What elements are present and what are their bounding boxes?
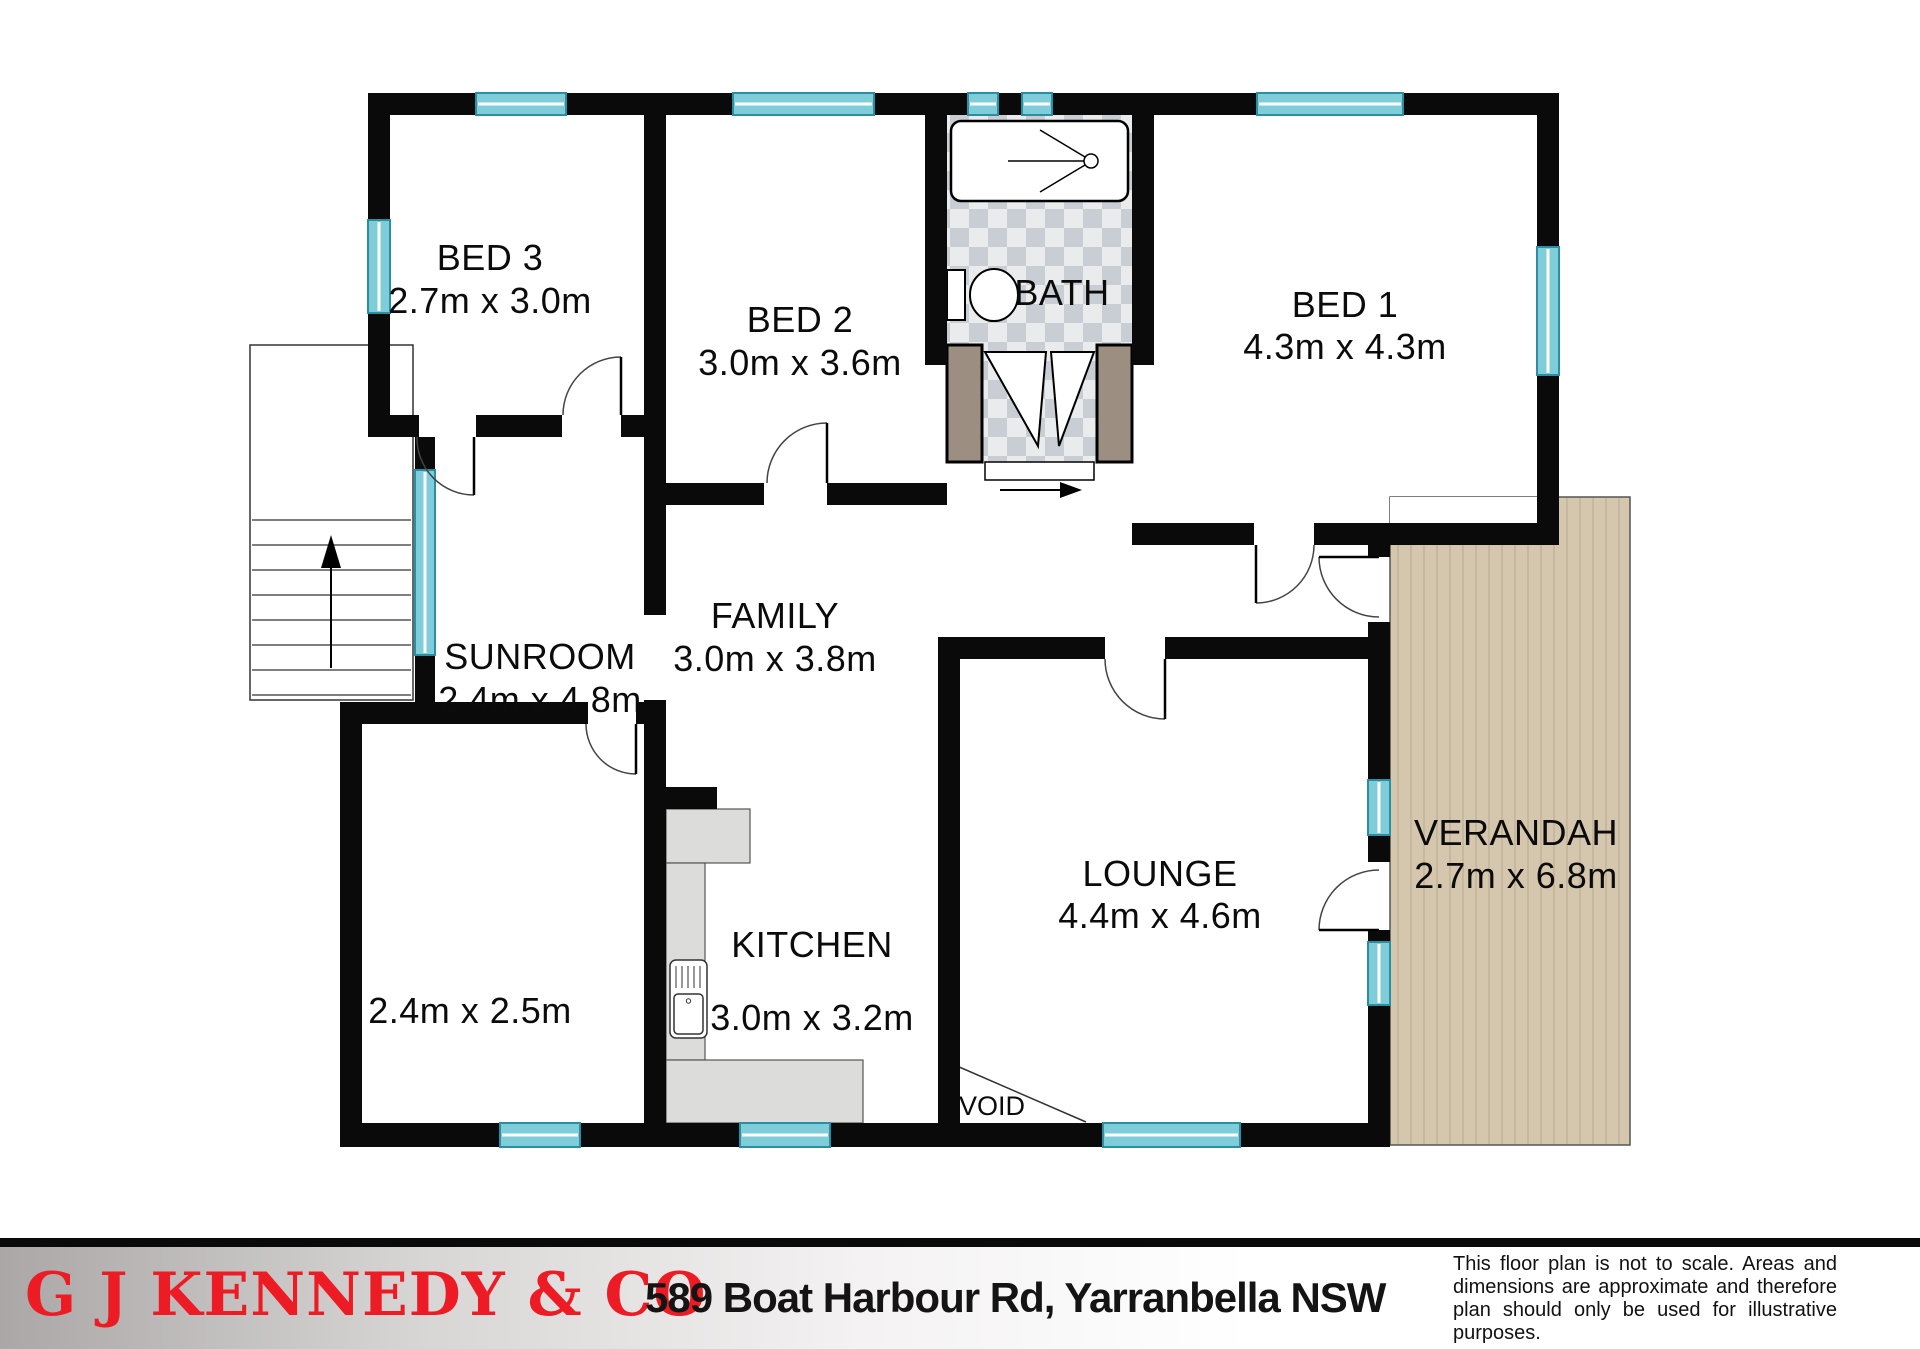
wall (644, 700, 666, 1123)
wall (1368, 622, 1390, 780)
wall (830, 1123, 1103, 1147)
wall (1165, 637, 1368, 659)
wall (1240, 1123, 1390, 1147)
wall (644, 787, 717, 809)
wall (340, 702, 362, 1147)
room-dims-bed1: 4.3m x 4.3m (1243, 326, 1447, 367)
door-arc (1319, 557, 1379, 617)
room-label-verandah: VERANDAH (1414, 812, 1618, 853)
disclaimer-text: This floor plan is not to scale. Areas a… (1453, 1253, 1837, 1345)
wall (580, 1123, 740, 1147)
door-arc (1256, 545, 1314, 603)
footer-divider (0, 1238, 1920, 1247)
room-label-bed1: BED 1 (1292, 284, 1399, 325)
kitchen-counter (666, 809, 750, 863)
door-arc (767, 423, 827, 483)
room-dims-verandah: 2.7m x 6.8m (1414, 855, 1618, 896)
property-address: 589 Boat Harbour Rd, Yarranbella NSW (645, 1273, 1385, 1323)
wall (415, 437, 435, 470)
shower-head (1084, 154, 1098, 168)
kitchen-counter (666, 1060, 863, 1123)
room-label-sunroom: SUNROOM (444, 636, 636, 677)
wall (476, 415, 562, 437)
room-label-bed2: BED 2 (747, 299, 854, 340)
robe-cupboard (1097, 345, 1132, 462)
wall (1368, 835, 1390, 862)
wall (938, 637, 1105, 659)
entry-arrow-head (1060, 482, 1082, 498)
wall (621, 415, 646, 437)
wall (1132, 115, 1154, 365)
wall (340, 1123, 500, 1147)
door-arc (1319, 870, 1379, 930)
room-dims-sunroom: 2.4m x 4.8m (438, 679, 642, 720)
wall (1132, 523, 1254, 545)
footer-bar: G J KENNEDY & CO 589 Boat Harbour Rd, Ya… (0, 1247, 1920, 1349)
door-threshold (985, 462, 1094, 480)
room-label-lounge: LOUNGE (1082, 853, 1237, 894)
wall (925, 115, 947, 365)
room-dims-kitchen: 3.0m x 3.2m (710, 997, 914, 1038)
door-arc (586, 724, 636, 774)
floor-plan: BED 32.7m x 3.0mBED 23.0m x 3.6mBATHBED … (0, 0, 1920, 1238)
door-arc (563, 357, 621, 415)
room-label-bed3: BED 3 (437, 237, 544, 278)
agency-logo-text: G J KENNEDY & CO (25, 1259, 625, 1331)
toilet-cistern (947, 270, 965, 320)
floor-plan-svg: BED 32.7m x 3.0mBED 23.0m x 3.6mBATHBED … (0, 0, 1920, 1238)
room-dims-bed2: 3.0m x 3.6m (698, 342, 902, 383)
room-dims-bed3: 2.7m x 3.0m (388, 280, 592, 321)
wall (1368, 545, 1390, 557)
wall (827, 483, 947, 505)
robe-cupboard (947, 345, 982, 462)
wall (938, 659, 960, 1123)
wall (368, 415, 419, 437)
toilet-bowl (970, 269, 1018, 321)
room-label-void: VOID (959, 1091, 1025, 1121)
wall (1314, 523, 1559, 545)
house-interior-patch (1390, 497, 1537, 524)
wall (644, 115, 666, 615)
room-dims-store: 2.4m x 2.5m (368, 990, 572, 1031)
room-dims-lounge: 4.4m x 4.6m (1058, 895, 1262, 936)
room-dims-family: 3.0m x 3.8m (673, 638, 877, 679)
sink-basin (674, 994, 703, 1034)
wall (1537, 375, 1559, 545)
wall (415, 655, 435, 702)
room-label-family: FAMILY (711, 595, 839, 636)
door-arc (1105, 659, 1165, 719)
wall (1537, 115, 1559, 247)
room-label-bath: BATH (1014, 272, 1109, 313)
room-label-kitchen: KITCHEN (731, 924, 893, 965)
wall (666, 483, 764, 505)
wall (1368, 930, 1390, 942)
